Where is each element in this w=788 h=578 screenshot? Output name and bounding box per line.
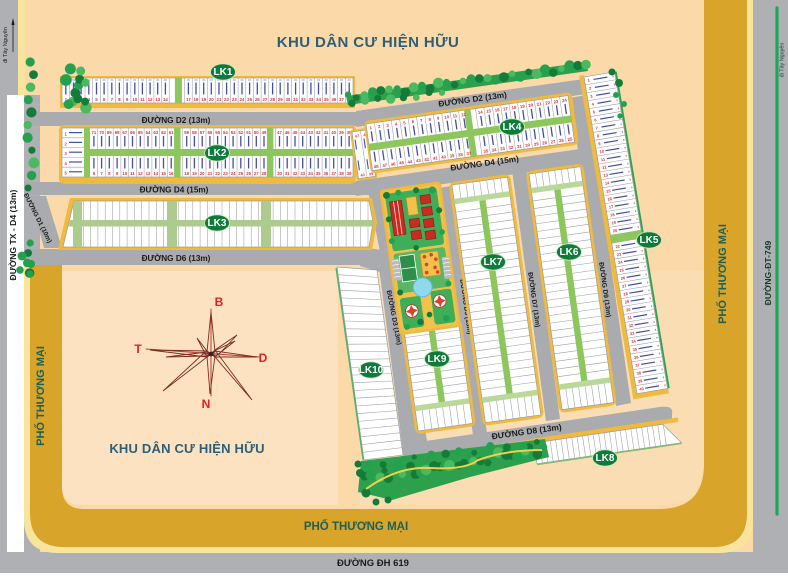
svg-text:ĐƯỜNG D4 (15m): ĐƯỜNG D4 (15m) [140,184,209,195]
svg-text:13: 13 [155,97,160,102]
svg-text:58: 58 [192,130,197,135]
svg-text:ĐƯỜNG D6 (13m): ĐƯỜNG D6 (13m) [142,252,211,263]
svg-text:49: 49 [262,130,267,135]
svg-text:14: 14 [163,97,168,102]
svg-text:KHU DÂN CƯ HIỆN HỮU: KHU DÂN CƯ HIỆN HỮU [109,441,264,456]
svg-text:12: 12 [138,171,143,176]
svg-text:LK6: LK6 [560,247,579,258]
svg-text:27: 27 [254,171,259,176]
svg-text:đi Tây Nguyên: đi Tây Nguyên [780,43,786,78]
svg-text:25: 25 [247,97,252,102]
svg-text:31: 31 [293,97,298,102]
svg-text:30: 30 [285,97,290,102]
svg-text:47: 47 [277,130,282,135]
svg-text:LK9: LK9 [428,354,447,365]
svg-text:ĐƯỜNG TX - D4 (13m): ĐƯỜNG TX - D4 (13m) [7,189,18,280]
svg-text:32: 32 [301,97,306,102]
svg-text:42: 42 [316,130,321,135]
svg-text:64: 64 [146,130,151,135]
svg-text:PHỐ THƯƠNG MẠI: PHỐ THƯƠNG MẠI [715,224,729,324]
svg-text:54: 54 [223,130,228,135]
svg-text:28: 28 [262,171,267,176]
svg-text:LK8: LK8 [596,453,615,464]
svg-text:37: 37 [339,97,344,102]
svg-text:41: 41 [324,130,329,135]
svg-text:13: 13 [146,171,151,176]
svg-text:22: 22 [215,171,220,176]
svg-text:21: 21 [208,171,213,176]
svg-text:26: 26 [246,171,251,176]
svg-text:25: 25 [238,171,243,176]
svg-text:62: 62 [161,130,166,135]
svg-text:33: 33 [300,171,305,176]
svg-text:LK4: LK4 [503,122,522,133]
svg-text:69: 69 [107,130,112,135]
svg-text:LK7: LK7 [484,257,503,268]
svg-text:34: 34 [316,97,321,102]
svg-text:40: 40 [331,130,336,135]
svg-text:LK2: LK2 [208,148,227,159]
svg-text:38: 38 [339,171,344,176]
svg-text:46: 46 [285,130,290,135]
svg-text:68: 68 [115,130,120,135]
svg-text:35: 35 [324,97,329,102]
svg-text:52: 52 [238,130,243,135]
svg-text:đi Tây Nguyên: đi Tây Nguyên [3,27,9,63]
svg-text:30: 30 [277,171,282,176]
svg-text:11: 11 [140,97,145,102]
svg-text:36: 36 [324,171,329,176]
svg-text:59: 59 [184,130,189,135]
svg-text:34: 34 [308,171,313,176]
svg-text:12: 12 [148,97,153,102]
svg-text:20: 20 [209,97,214,102]
svg-text:26: 26 [255,97,260,102]
svg-text:21: 21 [217,97,222,102]
svg-text:20: 20 [200,171,205,176]
svg-text:33: 33 [308,97,313,102]
svg-text:29: 29 [278,97,283,102]
svg-text:32: 32 [293,171,298,176]
svg-text:PHỐ THƯƠNG MẠI: PHỐ THƯƠNG MẠI [304,519,408,533]
svg-text:27: 27 [262,97,267,102]
svg-text:55: 55 [215,130,220,135]
svg-text:50: 50 [254,130,259,135]
svg-text:63: 63 [153,130,158,135]
svg-text:36: 36 [331,97,336,102]
svg-text:LK10: LK10 [359,365,384,376]
svg-text:10: 10 [132,97,137,102]
svg-text:LK5: LK5 [640,235,659,246]
svg-text:45: 45 [293,130,298,135]
svg-text:39: 39 [369,172,374,177]
svg-text:35: 35 [316,171,321,176]
svg-text:16: 16 [169,171,174,176]
svg-text:18: 18 [194,97,199,102]
svg-text:15: 15 [161,171,166,176]
svg-text:53: 53 [231,130,236,135]
svg-text:LK3: LK3 [208,218,227,229]
svg-text:11: 11 [130,171,135,176]
svg-text:47: 47 [355,134,360,139]
svg-text:51: 51 [246,130,251,135]
svg-text:28: 28 [270,97,275,102]
svg-text:22: 22 [224,97,229,102]
svg-text:KHU DÂN CƯ HIỆN HỮU: KHU DÂN CƯ HIỆN HỮU [277,33,460,51]
svg-text:24: 24 [231,171,236,176]
svg-text:17: 17 [186,97,191,102]
svg-text:18: 18 [184,171,189,176]
svg-text:23: 23 [232,97,237,102]
svg-text:39: 39 [347,171,352,176]
svg-text:57: 57 [200,130,205,135]
svg-text:44: 44 [300,130,305,135]
svg-text:19: 19 [201,97,206,102]
svg-text:24: 24 [240,97,245,102]
svg-text:37: 37 [331,171,336,176]
svg-text:ĐƯỜNG D2 (13m): ĐƯỜNG D2 (13m) [142,114,211,125]
svg-text:39: 39 [339,130,344,135]
svg-text:D: D [259,351,268,365]
svg-text:LK1: LK1 [214,67,233,78]
svg-text:56: 56 [208,130,213,135]
svg-text:66: 66 [130,130,135,135]
svg-text:65: 65 [138,130,143,135]
svg-text:ĐƯỜNG-ĐT-749: ĐƯỜNG-ĐT-749 [762,240,773,305]
svg-text:19: 19 [192,171,197,176]
svg-text:70: 70 [99,130,104,135]
svg-text:PHỐ THƯƠNG MẠI: PHỐ THƯƠNG MẠI [33,346,47,446]
svg-text:61: 61 [169,130,174,135]
svg-text:40: 40 [360,173,365,178]
svg-text:T: T [134,342,142,356]
svg-text:ĐƯỜNG ĐH 619: ĐƯỜNG ĐH 619 [337,557,409,569]
svg-text:31: 31 [285,171,290,176]
svg-text:23: 23 [223,171,228,176]
svg-text:67: 67 [122,130,127,135]
svg-text:43: 43 [308,130,313,135]
svg-text:B: B [215,295,224,309]
svg-text:71: 71 [92,130,97,135]
svg-text:14: 14 [153,171,158,176]
svg-text:10: 10 [122,171,127,176]
svg-text:N: N [202,397,211,411]
